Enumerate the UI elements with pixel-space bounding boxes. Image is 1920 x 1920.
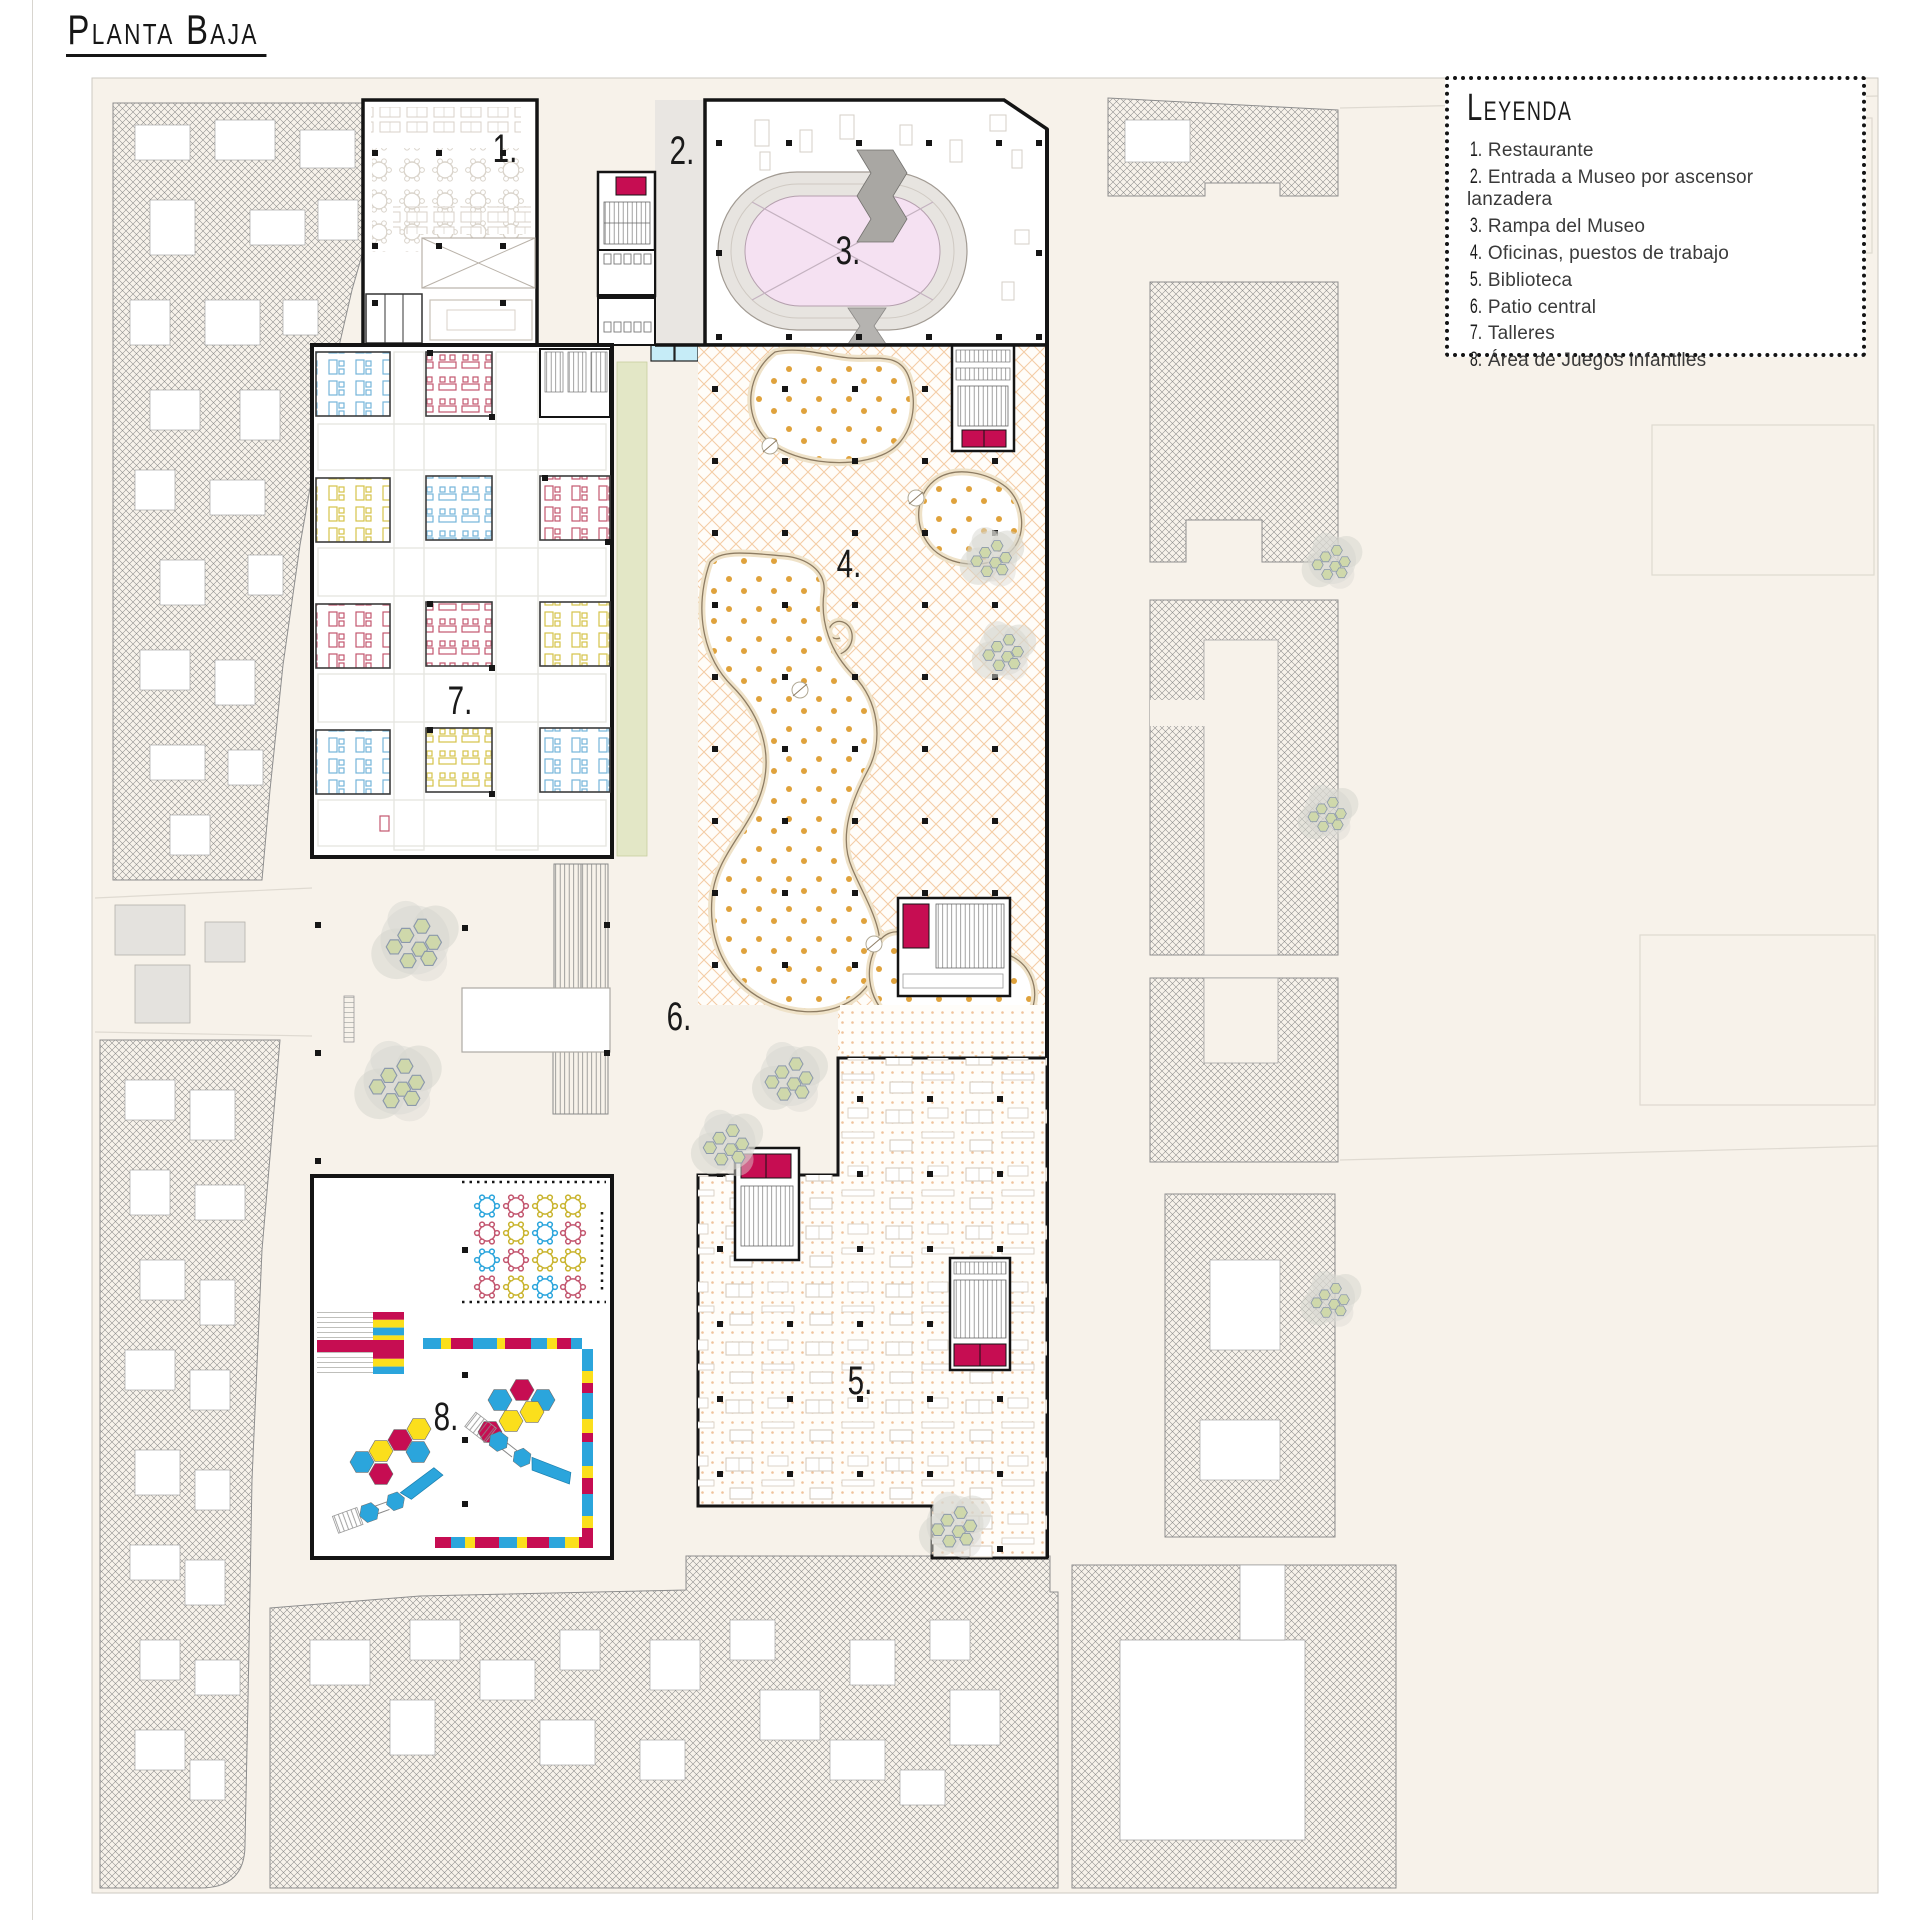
legend-item-rampa: 3.Rampa del Museo [1467,213,1842,239]
workshop-room-blue [316,730,390,794]
legend-item-label: Entrada a Museo por ascensor lanzadera [1467,167,1753,211]
play-ramp-striped [317,1312,404,1374]
context-right-block-d [1165,1194,1335,1537]
building-juegos [312,1176,612,1558]
workshop-room-yellow [316,478,390,542]
legend-item-number: 7. [1470,320,1482,345]
legend-box: Leyenda 1.Restaurante 2.Entrada a Museo … [1445,76,1866,357]
context-right-top-strip [1108,98,1338,196]
legend-item-label: Área de Juegos infantiles [1488,350,1706,371]
patio-bench [344,996,354,1042]
label-oficinas: 4. [837,542,862,586]
restaurant-table-row [393,206,531,234]
green-strip [617,362,647,856]
page-title-text: Planta Baja [66,8,267,57]
legend-item-label: Talleres [1488,323,1555,344]
legend-item-number: 4. [1470,240,1482,265]
legend-item-biblioteca: 5.Biblioteca [1467,267,1842,293]
workshop-room-red [426,352,492,416]
context-right-block-b [1150,600,1338,955]
label-rampa: 3. [836,229,861,273]
legend-item-label: Rampa del Museo [1488,216,1645,237]
patio-stairs-lower [553,1052,608,1114]
legend-item-label: Biblioteca [1488,270,1572,291]
workshop-stair-block [540,349,610,417]
stair-core-offices-mid [898,898,1010,996]
legend-item-number: 2. [1470,164,1482,189]
elevator [903,904,929,948]
legend-item-number: 1. [1470,137,1482,162]
shuttle-corridor-floor-lower [652,290,705,345]
legend-item-number: 8. [1470,347,1482,372]
label-restaurante: 1. [493,127,518,171]
legend-item-patio: 6.Patio central [1467,294,1842,320]
building-talleres [312,345,612,857]
workshop-room-red [540,476,610,540]
legend-item-label: Patio central [1488,297,1596,318]
workshop-room-red [316,604,390,668]
floor-plan-page: 1. 2. 3. 4. 5. 6. 7. 8. Planta Baja Leye… [0,0,1920,1920]
legend-item-talleres: 7.Talleres [1467,320,1842,346]
building-museo-hall [705,100,1047,345]
label-talleres: 7. [448,679,473,723]
patio-bridge [462,988,610,1052]
stair-elevator-core-entry [598,172,655,345]
legend-item-entrada: 2.Entrada a Museo por ascensor lanzadera [1467,164,1842,213]
legend-item-number: 3. [1470,213,1482,238]
context-bottom-right-block [1072,1565,1396,1888]
legend-item-number: 5. [1470,267,1482,292]
legend-item-restaurante: 1.Restaurante [1467,137,1842,163]
workshop-room-blue [426,476,492,540]
context-right-block-c [1150,978,1338,1162]
page-title: Planta Baja [66,8,323,57]
workshop-room-red [426,602,492,666]
context-right-block-a [1150,282,1338,562]
label-patio: 6. [667,995,692,1039]
stair-core-offices-top [952,345,1014,451]
context-bottom-block [270,1556,1058,1888]
workshop-room-blue [540,728,610,792]
legend-item-label: Oficinas, puestos de trabajo [1488,243,1729,264]
stair-core-library-right [950,1258,1010,1370]
legend-item-juegos: 8.Área de Juegos infantiles [1467,347,1842,373]
shuttle-elevator [616,177,646,195]
label-entrada-museo: 2. [670,129,695,173]
legend-item-number: 6. [1470,294,1482,319]
legend-item-oficinas: 4.Oficinas, puestos de trabajo [1467,240,1842,266]
legend-item-label: Restaurante [1488,140,1594,161]
workshop-room-blue [316,352,390,416]
label-juegos: 8. [434,1395,459,1439]
restaurant-back-rooms [366,294,532,343]
workshop-room-yellow [426,728,492,792]
legend-title: Leyenda [1467,88,1572,130]
workshop-room-yellow [540,602,610,666]
label-biblioteca: 5. [848,1359,873,1403]
